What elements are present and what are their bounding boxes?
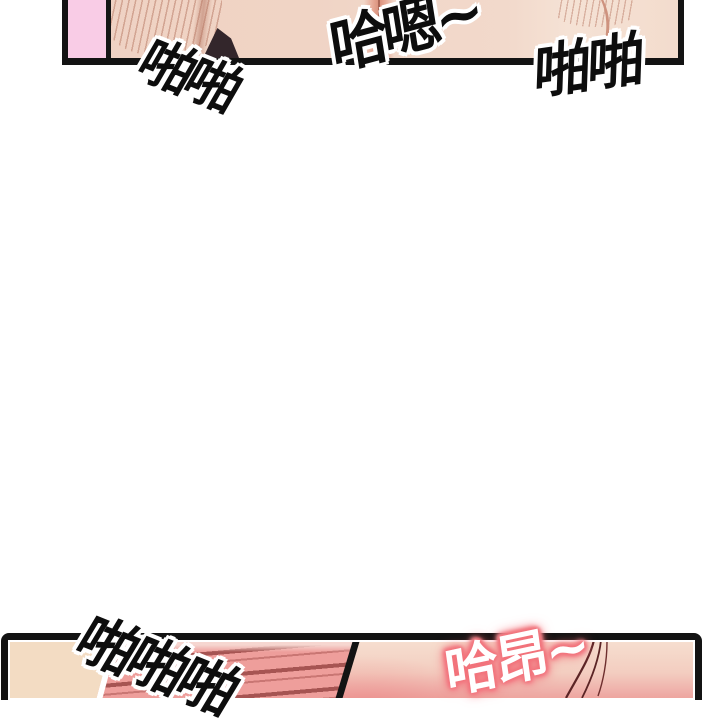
- sfx-moan-top-center: 哈嗯~: [326, 0, 483, 80]
- comic-page: { "comic": { "sfx": { "top_left": "啪啪", …: [0, 0, 720, 700]
- sfx-slap-bottom-left: 啪啪啪: [66, 610, 246, 721]
- sfx-slap-top-right: 啪啪: [533, 29, 642, 103]
- pink-wall-block: [68, 0, 111, 58]
